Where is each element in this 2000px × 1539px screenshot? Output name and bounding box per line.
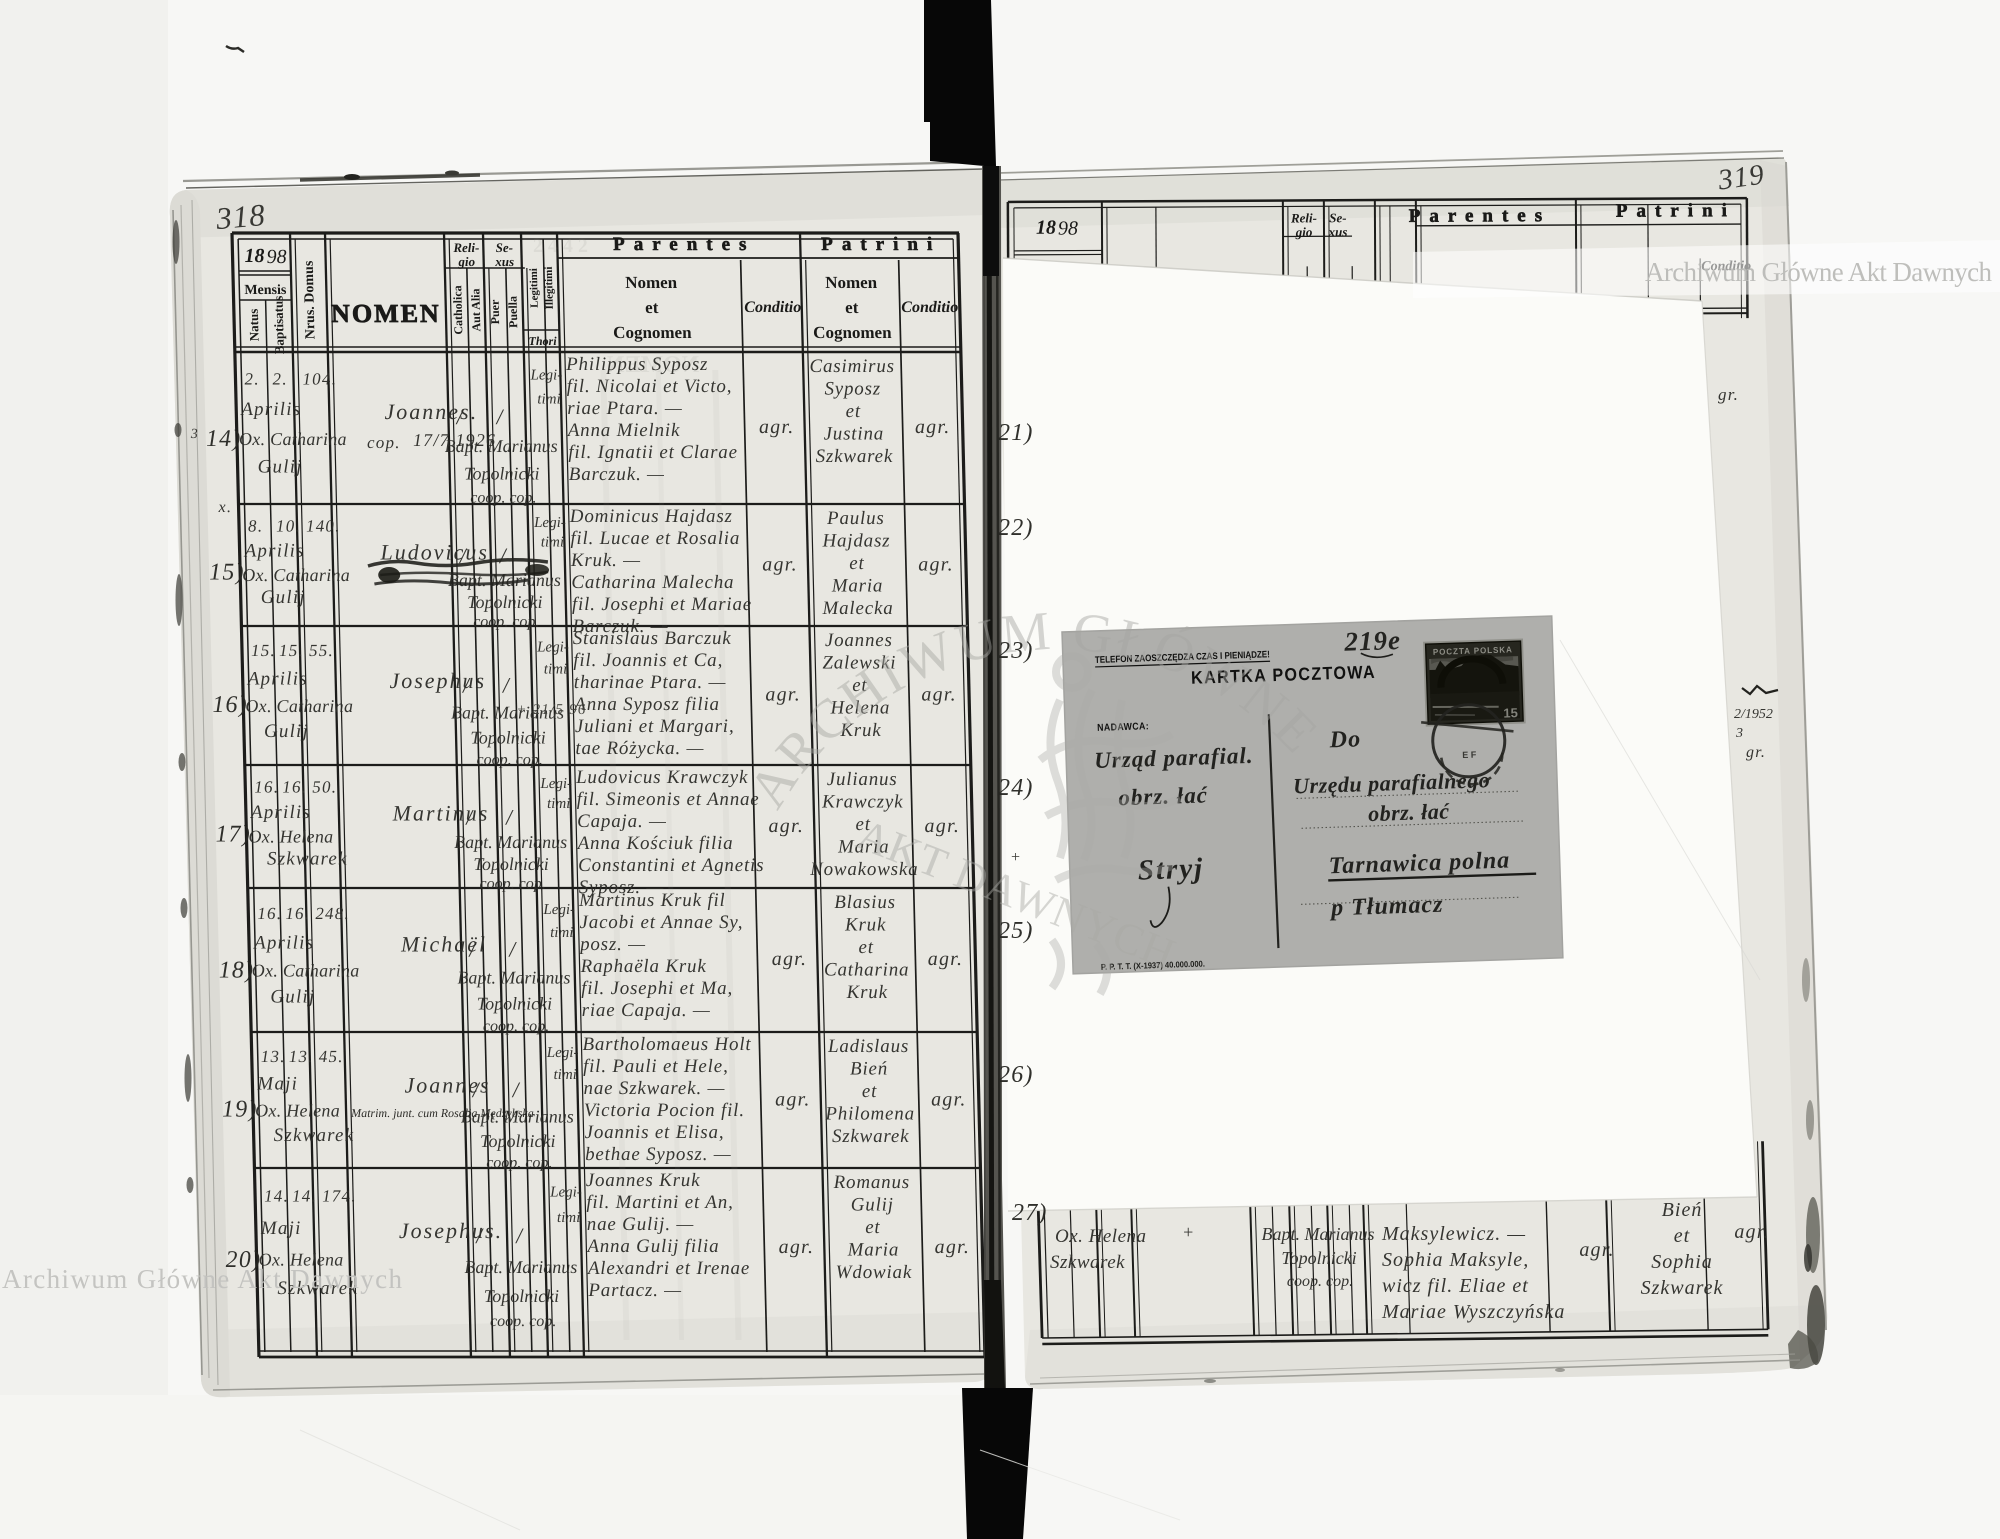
svg-text:Bień: Bień bbox=[1662, 1199, 1703, 1221]
svg-text:15.: 15. bbox=[279, 641, 304, 660]
svg-text:22): 22) bbox=[998, 515, 1034, 541]
svg-text:NOMEN: NOMEN bbox=[331, 299, 441, 328]
svg-text:Anna Mielnik: Anna Mielnik bbox=[565, 420, 680, 441]
svg-text:agr.: agr. bbox=[759, 416, 795, 438]
svg-text:Bartholomaeus Holt: Bartholomaeus Holt bbox=[582, 1034, 752, 1055]
svg-text:23): 23) bbox=[998, 638, 1034, 664]
svg-text:xus: xus bbox=[494, 254, 514, 269]
svg-text:fil. Joannis et Ca,: fil. Joannis et Ca, bbox=[573, 650, 723, 671]
svg-text:Hajdasz: Hajdasz bbox=[821, 531, 890, 552]
svg-text:timi: timi bbox=[557, 1210, 581, 1226]
svg-text:Ox. Catharina: Ox. Catharina bbox=[239, 429, 347, 449]
svg-text:coop. cop.: coop. cop. bbox=[479, 875, 546, 892]
svg-text:/: / bbox=[461, 672, 472, 697]
svg-text:coop. cop.: coop. cop. bbox=[486, 1154, 553, 1171]
svg-text:fil. Pauli et Hele,: fil. Pauli et Hele, bbox=[583, 1056, 729, 1077]
svg-text:x.: x. bbox=[217, 499, 232, 516]
svg-text:gr.: gr. bbox=[1718, 385, 1739, 404]
svg-text:Legi-: Legi- bbox=[542, 902, 575, 918]
svg-text:Ox. Catharina: Ox. Catharina bbox=[242, 565, 350, 585]
svg-text:Wdowiak: Wdowiak bbox=[836, 1262, 913, 1283]
svg-text:Victoria Pocion fil.: Victoria Pocion fil. bbox=[584, 1100, 745, 1121]
svg-text:Aprilis: Aprilis bbox=[239, 399, 302, 420]
svg-text:coop. cop.: coop. cop. bbox=[490, 1313, 557, 1330]
svg-text:26): 26) bbox=[998, 1062, 1034, 1088]
svg-text:Catharina Malecha: Catharina Malecha bbox=[571, 572, 734, 593]
svg-text:Julianus: Julianus bbox=[826, 769, 897, 790]
svg-text:16.: 16. bbox=[254, 778, 279, 797]
svg-text:xus: xus bbox=[1328, 224, 1348, 239]
svg-text:18: 18 bbox=[1036, 217, 1056, 239]
svg-text:fil. Josephi et Ma,: fil. Josephi et Ma, bbox=[581, 978, 733, 999]
svg-text:Joannes.: Joannes. bbox=[384, 399, 478, 424]
svg-text:fil. Josephi et Mariae: fil. Josephi et Mariae bbox=[572, 594, 753, 615]
svg-text:Gulij: Gulij bbox=[260, 587, 306, 608]
svg-text:Patrini: Patrini bbox=[821, 234, 941, 255]
svg-text:/: / bbox=[510, 1077, 521, 1102]
svg-text:Legi-: Legi- bbox=[546, 1045, 579, 1061]
svg-text:coop. cop.: coop. cop. bbox=[470, 489, 537, 506]
svg-text:fil. Lucae et Rosalia: fil. Lucae et Rosalia bbox=[570, 528, 740, 549]
svg-text:248.: 248. bbox=[315, 904, 350, 923]
svg-text:Parentes: Parentes bbox=[613, 234, 756, 255]
svg-text:agr.: agr. bbox=[1734, 1221, 1769, 1243]
svg-text:Bapt. Marianus: Bapt. Marianus bbox=[454, 832, 567, 852]
svg-text:45.: 45. bbox=[319, 1047, 344, 1066]
svg-text:riae Capaja. —: riae Capaja. — bbox=[581, 1000, 710, 1021]
svg-text:2.: 2. bbox=[244, 369, 260, 388]
svg-text:tharinae Ptara. —: tharinae Ptara. — bbox=[574, 672, 727, 693]
svg-text:et: et bbox=[862, 1081, 878, 1102]
svg-text:Topolnicki: Topolnicki bbox=[477, 993, 553, 1013]
svg-text:Constantini et Agnetis: Constantini et Agnetis bbox=[578, 855, 765, 876]
svg-text:Ludovicus Krawczyk: Ludovicus Krawczyk bbox=[575, 767, 749, 788]
svg-text:agr.: agr. bbox=[934, 1236, 970, 1258]
svg-text:/: / bbox=[504, 805, 515, 830]
svg-text:Se-: Se- bbox=[1329, 210, 1346, 225]
svg-text:timi: timi bbox=[537, 392, 561, 408]
svg-text:50.: 50. bbox=[312, 778, 337, 797]
svg-text:agr.: agr. bbox=[1579, 1239, 1614, 1261]
svg-text:Baptisatus: Baptisatus bbox=[270, 296, 286, 355]
svg-text:/: / bbox=[470, 1077, 481, 1102]
svg-text:Aut Alia: Aut Alia bbox=[468, 288, 483, 331]
svg-text:Josephus.: Josephus. bbox=[399, 1218, 504, 1243]
svg-text:Do: Do bbox=[1328, 726, 1362, 753]
svg-text:Archiwum Główne Akt Dawnych: Archiwum Główne Akt Dawnych bbox=[2, 1264, 403, 1294]
svg-text:Maji: Maji bbox=[256, 1074, 298, 1095]
svg-text:/: / bbox=[507, 936, 518, 961]
svg-text:98: 98 bbox=[266, 246, 287, 268]
svg-text:et: et bbox=[645, 298, 659, 317]
svg-text:Catharina: Catharina bbox=[824, 960, 910, 981]
svg-text:et: et bbox=[858, 937, 874, 958]
svg-text:et: et bbox=[865, 1217, 881, 1238]
svg-text:+: + bbox=[1010, 849, 1022, 866]
svg-text:Anna Syposz filia: Anna Syposz filia bbox=[572, 694, 720, 715]
svg-text:Romanus: Romanus bbox=[832, 1172, 910, 1193]
svg-text:140.: 140. bbox=[306, 517, 341, 536]
svg-text:Barczuk. —: Barczuk. — bbox=[569, 464, 665, 485]
svg-text:fil. Nicolai et Victo,: fil. Nicolai et Victo, bbox=[566, 376, 732, 397]
svg-text:Joannis et Elisa,: Joannis et Elisa, bbox=[584, 1122, 724, 1143]
svg-text:16.: 16. bbox=[285, 904, 310, 923]
svg-text:Legi-: Legi- bbox=[533, 515, 566, 531]
svg-text:agr.: agr. bbox=[775, 1088, 811, 1110]
svg-text:Parentes: Parentes bbox=[1409, 205, 1551, 227]
svg-text:14.: 14. bbox=[292, 1187, 317, 1206]
svg-text:coop. cop.: coop. cop. bbox=[483, 1018, 550, 1035]
svg-text:et: et bbox=[849, 553, 865, 574]
svg-text:3: 3 bbox=[190, 427, 200, 442]
svg-text:21): 21) bbox=[998, 420, 1034, 446]
svg-text:16.: 16. bbox=[282, 778, 307, 797]
svg-text:15: 15 bbox=[1503, 705, 1518, 720]
svg-text:219e: 219e bbox=[1343, 625, 1401, 657]
svg-text:Gulij: Gulij bbox=[270, 987, 316, 1008]
svg-text:E F: E F bbox=[1462, 750, 1477, 760]
svg-text:Se-: Se- bbox=[495, 240, 513, 255]
svg-text:104.: 104. bbox=[302, 369, 337, 388]
svg-text:Malecka: Malecka bbox=[821, 598, 894, 619]
svg-text:cop.: cop. bbox=[367, 433, 401, 452]
svg-text:27): 27) bbox=[1012, 1200, 1048, 1226]
svg-text:Legi-: Legi- bbox=[539, 776, 572, 792]
svg-text:wicz fil. Eliae et: wicz fil. Eliae et bbox=[1382, 1275, 1529, 1297]
svg-text:17/7 1926: 17/7 1926 bbox=[413, 430, 497, 450]
svg-text:Topolnicki: Topolnicki bbox=[473, 854, 549, 874]
svg-text:10.: 10. bbox=[276, 517, 301, 536]
svg-text:Syposz: Syposz bbox=[824, 379, 881, 400]
svg-text:agr.: agr. bbox=[762, 554, 798, 576]
svg-text:Mariae Wyszczyńska: Mariae Wyszczyńska bbox=[1381, 1301, 1565, 1323]
svg-text:Martinus: Martinus bbox=[391, 801, 489, 826]
svg-text:Puer: Puer bbox=[488, 299, 503, 324]
svg-text:Topolnicki: Topolnicki bbox=[480, 1131, 556, 1151]
svg-text:Jacobi et Annae Sy,: Jacobi et Annae Sy, bbox=[579, 912, 743, 933]
svg-text:posz. —: posz. — bbox=[578, 934, 646, 955]
svg-text:Stanislaus Barczuk: Stanislaus Barczuk bbox=[572, 628, 731, 649]
svg-text:Kruk. —: Kruk. — bbox=[570, 550, 641, 571]
svg-text:tae Różycka. —: tae Różycka. — bbox=[575, 738, 704, 759]
svg-text:Szkwarek: Szkwarek bbox=[815, 446, 893, 467]
svg-text:/: / bbox=[467, 936, 478, 961]
svg-text:Reli-: Reli- bbox=[1290, 210, 1317, 225]
svg-text:Gulij: Gulij bbox=[257, 456, 303, 477]
svg-text:nae Gulij. —: nae Gulij. — bbox=[587, 1214, 695, 1235]
svg-text:coop. cop.: coop. cop. bbox=[476, 751, 543, 768]
svg-text:timi: timi bbox=[541, 535, 565, 551]
svg-text:Aprilis: Aprilis bbox=[252, 932, 315, 953]
svg-text:Patrini: Patrini bbox=[1616, 200, 1736, 222]
svg-text:timi: timi bbox=[550, 925, 574, 941]
svg-text:Maria: Maria bbox=[830, 576, 883, 597]
svg-text:Maria: Maria bbox=[846, 1240, 899, 1261]
svg-text:gio: gio bbox=[1295, 224, 1313, 239]
svg-text:Philippus Syposz: Philippus Syposz bbox=[565, 354, 709, 375]
svg-text:Ox. Helena: Ox. Helena bbox=[248, 826, 333, 846]
svg-text:318: 318 bbox=[214, 197, 267, 236]
svg-text:fil. Simeonis et Annae: fil. Simeonis et Annae bbox=[576, 789, 759, 810]
svg-text:Matrim. junt. cum Rosalia Mędz: Matrim. junt. cum Rosalia Mędzybska bbox=[350, 1106, 534, 1120]
svg-text:timi: timi bbox=[547, 796, 571, 812]
svg-text:3: 3 bbox=[1735, 726, 1744, 741]
svg-text:agr.: agr. bbox=[915, 416, 951, 438]
svg-text:Topolnicki: Topolnicki bbox=[1281, 1248, 1356, 1268]
svg-text:riae Ptara. —: riae Ptara. — bbox=[567, 398, 683, 419]
svg-text:Puella: Puella bbox=[506, 296, 521, 328]
svg-text:Aprilis: Aprilis bbox=[242, 541, 305, 562]
svg-text:Dominicus Hajdasz: Dominicus Hajdasz bbox=[569, 506, 733, 527]
svg-text:Legitimi: Legitimi bbox=[528, 268, 541, 308]
svg-text:Justina: Justina bbox=[823, 424, 884, 445]
svg-text:Kruk: Kruk bbox=[844, 915, 887, 936]
svg-text:/: / bbox=[454, 404, 465, 429]
svg-text:Szkwarek: Szkwarek bbox=[273, 1125, 354, 1146]
svg-text:NADAWCA:: NADAWCA: bbox=[1097, 721, 1149, 734]
svg-text:14.: 14. bbox=[264, 1187, 289, 1206]
svg-text:Cognomen: Cognomen bbox=[813, 323, 892, 342]
svg-text:17): 17) bbox=[215, 821, 251, 847]
svg-text:Topolnicki: Topolnicki bbox=[464, 464, 540, 484]
svg-text:et: et bbox=[845, 401, 861, 422]
svg-text:timi: timi bbox=[553, 1067, 577, 1083]
svg-text:Reli-: Reli- bbox=[452, 240, 479, 255]
svg-text:Szkwarek: Szkwarek bbox=[1641, 1277, 1724, 1299]
svg-text:Legi-: Legi- bbox=[549, 1184, 582, 1200]
svg-text:Aprilis: Aprilis bbox=[245, 669, 308, 690]
svg-text:Juliani et Margari,: Juliani et Margari, bbox=[575, 716, 735, 737]
svg-text:Capaja. —: Capaja. — bbox=[577, 811, 667, 832]
svg-text:Szkwarek: Szkwarek bbox=[267, 849, 348, 870]
svg-text:Anna Kościuk filia: Anna Kościuk filia bbox=[575, 833, 733, 854]
svg-text:Gulij: Gulij bbox=[264, 721, 310, 742]
svg-text:Aprilis: Aprilis bbox=[249, 802, 312, 823]
svg-text:Josephus: Josephus bbox=[389, 668, 486, 693]
svg-text:fil. Martini et An,: fil. Martini et An, bbox=[586, 1192, 734, 1213]
svg-text:13.: 13. bbox=[289, 1047, 314, 1066]
svg-text:agr.: agr. bbox=[768, 815, 804, 837]
svg-text:Thori: Thori bbox=[528, 334, 557, 348]
svg-text:98: 98 bbox=[1058, 218, 1078, 240]
svg-text:agr.: agr. bbox=[931, 1088, 967, 1110]
svg-text:agr.: agr. bbox=[918, 554, 954, 576]
svg-text:15.: 15. bbox=[251, 641, 276, 660]
svg-text:Legi-: Legi- bbox=[536, 639, 569, 655]
svg-text:Ox. Helena: Ox. Helena bbox=[1055, 1226, 1147, 1247]
svg-text:agr.: agr. bbox=[771, 948, 807, 970]
svg-text:2/1952: 2/1952 bbox=[1734, 707, 1773, 722]
svg-text:Nrus. Domus: Nrus. Domus bbox=[302, 260, 319, 339]
svg-text:Kruk: Kruk bbox=[845, 982, 888, 1003]
svg-text:Conditio: Conditio bbox=[901, 299, 958, 316]
svg-text:gr.: gr. bbox=[1746, 744, 1766, 761]
svg-text:Joannes Kruk: Joannes Kruk bbox=[585, 1170, 700, 1191]
svg-text:/: / bbox=[474, 1223, 485, 1248]
svg-text:55.: 55. bbox=[309, 641, 334, 660]
svg-text:bethae Syposz. —: bethae Syposz. — bbox=[585, 1144, 732, 1165]
svg-text:Bapt. Marianus: Bapt. Marianus bbox=[457, 967, 570, 987]
svg-text:2.: 2. bbox=[272, 369, 288, 388]
svg-text:Blasius: Blasius bbox=[834, 892, 896, 913]
svg-text:Gulij: Gulij bbox=[851, 1195, 895, 1216]
svg-text:25): 25) bbox=[998, 918, 1034, 944]
svg-text:et: et bbox=[845, 298, 859, 317]
svg-text:Maji: Maji bbox=[260, 1218, 302, 1239]
svg-text:/: / bbox=[514, 1223, 525, 1248]
svg-text:Nomen: Nomen bbox=[825, 273, 878, 292]
svg-text:Archiwum Główne Akt Dawnych: Archiwum Główne Akt Dawnych bbox=[1645, 257, 1993, 287]
svg-text:Topolnicki: Topolnicki bbox=[484, 1286, 560, 1306]
svg-text:Bapt. Marianus: Bapt. Marianus bbox=[464, 1257, 577, 1277]
svg-text:/: / bbox=[464, 805, 475, 830]
svg-text:Ox. Catharina: Ox. Catharina bbox=[245, 696, 353, 716]
svg-text:24): 24) bbox=[998, 775, 1034, 801]
svg-text:13.: 13. bbox=[261, 1047, 286, 1066]
svg-text:+ 21/5 96: + 21/5 96 bbox=[516, 702, 586, 718]
svg-text:et: et bbox=[1674, 1225, 1690, 1247]
svg-text:Sophia: Sophia bbox=[1651, 1251, 1713, 1273]
svg-text:+: + bbox=[1182, 1222, 1195, 1242]
svg-text:16): 16) bbox=[212, 692, 248, 718]
svg-text:Topolnicki: Topolnicki bbox=[467, 592, 543, 612]
svg-text:coop. cop.: coop. cop. bbox=[473, 613, 540, 630]
svg-text:Martinus Kruk fil: Martinus Kruk fil bbox=[578, 890, 726, 911]
svg-text:Casimirus: Casimirus bbox=[809, 356, 895, 377]
svg-text:/: / bbox=[501, 672, 512, 697]
svg-text:Maksylewicz. —: Maksylewicz. — bbox=[1381, 1223, 1526, 1245]
svg-text:obrz. łać: obrz. łać bbox=[1368, 798, 1451, 826]
svg-text:174.: 174. bbox=[322, 1187, 357, 1206]
svg-text:Natus: Natus bbox=[246, 309, 262, 342]
svg-text:18: 18 bbox=[244, 245, 265, 267]
svg-text:Bień: Bień bbox=[850, 1059, 889, 1080]
svg-text:19): 19) bbox=[222, 1096, 258, 1122]
svg-text:Ladislaus: Ladislaus bbox=[827, 1036, 910, 1057]
svg-text:Ox. Catharina: Ox. Catharina bbox=[251, 961, 359, 981]
svg-text:coop. cop.: coop. cop. bbox=[1287, 1273, 1353, 1290]
svg-text:/: / bbox=[497, 543, 508, 568]
svg-text:Sophia Maksyle,: Sophia Maksyle, bbox=[1382, 1249, 1529, 1271]
svg-text:18): 18) bbox=[218, 957, 254, 983]
svg-text:Krawczyk: Krawczyk bbox=[821, 792, 904, 813]
svg-text:Bapt. Marianus: Bapt. Marianus bbox=[1261, 1224, 1374, 1244]
svg-text:Legi-: Legi- bbox=[529, 367, 562, 383]
svg-text:16.: 16. bbox=[257, 904, 282, 923]
svg-text:Raphaëla Kruk: Raphaëla Kruk bbox=[579, 956, 706, 977]
svg-text:8.: 8. bbox=[248, 517, 264, 536]
svg-text:fil. Ignatii et Clarae: fil. Ignatii et Clarae bbox=[568, 442, 738, 463]
svg-text:timi: timi bbox=[544, 662, 568, 678]
svg-text:Partacz. —: Partacz. — bbox=[587, 1280, 682, 1301]
svg-text:Topolnicki: Topolnicki bbox=[470, 727, 546, 747]
svg-text:2 4 4 2: 2 4 4 2 bbox=[533, 235, 589, 257]
svg-text:gio: gio bbox=[457, 254, 475, 269]
svg-text:Szkwarek: Szkwarek bbox=[1050, 1252, 1125, 1273]
svg-text:agr.: agr. bbox=[927, 948, 963, 970]
svg-text:nae Szkwarek. —: nae Szkwarek. — bbox=[583, 1078, 725, 1099]
svg-text:/: / bbox=[494, 404, 505, 429]
svg-text:Ox. Helena: Ox. Helena bbox=[255, 1100, 340, 1120]
svg-text:Conditio: Conditio bbox=[744, 299, 801, 316]
svg-text:agr.: agr. bbox=[778, 1236, 814, 1258]
svg-text:agr.: agr. bbox=[765, 684, 801, 706]
svg-text:Catholica: Catholica bbox=[450, 285, 465, 334]
svg-text:Paulus: Paulus bbox=[826, 508, 885, 529]
svg-text:14): 14) bbox=[206, 426, 242, 452]
svg-text:Nomen: Nomen bbox=[625, 273, 678, 292]
svg-text:319: 319 bbox=[1715, 158, 1766, 196]
svg-text:Szkwarek: Szkwarek bbox=[832, 1126, 910, 1147]
svg-text:Alexandri et Irenae: Alexandri et Irenae bbox=[586, 1258, 751, 1279]
svg-text:Philomena: Philomena bbox=[824, 1104, 915, 1125]
svg-text:p Tłumacz: p Tłumacz bbox=[1329, 892, 1444, 922]
svg-text:15): 15) bbox=[209, 560, 245, 586]
svg-text:Illegitimi: Illegitimi bbox=[543, 267, 556, 310]
svg-text:Anna Gulij filia: Anna Gulij filia bbox=[585, 1236, 720, 1257]
svg-text:Cognomen: Cognomen bbox=[613, 323, 692, 342]
